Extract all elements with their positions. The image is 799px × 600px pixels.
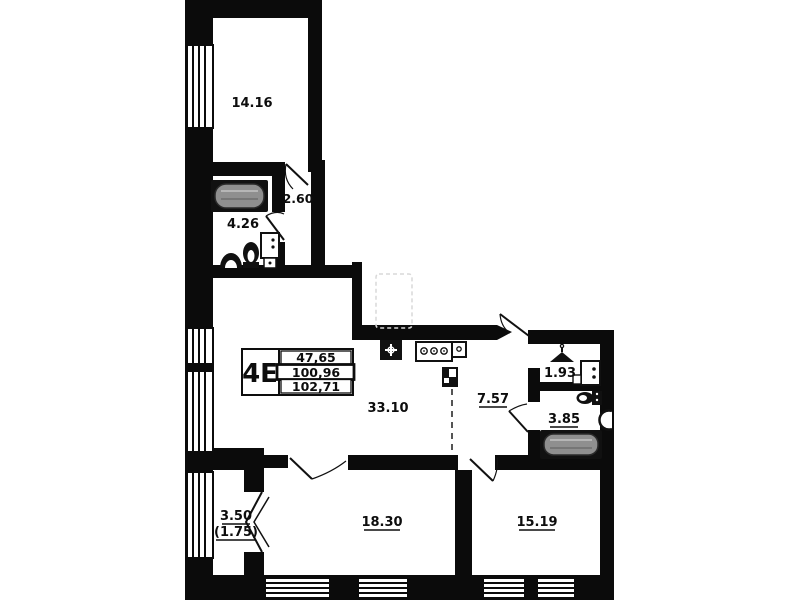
label-bedroom-bottom-left: 18.30 <box>361 515 402 530</box>
label-balcony-area: 3.50 <box>220 509 252 524</box>
wall-balcony-stub-top <box>244 468 264 492</box>
wall-kitchen-left <box>352 262 362 335</box>
label-corridor-small: 2.60 <box>283 191 314 206</box>
wall-hall-right-mid <box>528 368 540 402</box>
label-bathroom-right: 3.85 <box>548 412 580 427</box>
washing-machine-top-icon <box>261 233 279 268</box>
window-bottom-2 <box>358 578 408 598</box>
window-balcony-left <box>187 472 213 558</box>
unit-info-box: 4E 47,65 100,96 102,71 <box>242 349 354 395</box>
unit-code: 4E <box>242 359 278 389</box>
window-mid-left <box>187 328 213 452</box>
wall-bedroomtop-right <box>308 0 322 172</box>
toilet-right-icon <box>577 391 603 405</box>
window-bottom-3 <box>483 578 525 598</box>
bathtub-top-icon <box>211 180 268 212</box>
window-bottom-4 <box>537 578 575 598</box>
label-living-kitchen: 33.10 <box>367 401 408 416</box>
unit-living-area: 47,65 <box>296 350 336 365</box>
window-bottom-1 <box>265 578 330 598</box>
label-bedroom-bottom-right: 15.19 <box>516 515 557 530</box>
wall-bedrooms-divider <box>455 470 472 578</box>
unit-total-area: 102,71 <box>292 379 340 394</box>
label-bedroom-top: 14.16 <box>231 96 272 111</box>
kitchen-sink-icon <box>380 340 402 360</box>
wall-living-bottom-thick <box>348 455 458 470</box>
kitchen-appliance-icon <box>452 342 466 357</box>
window-top-left <box>187 45 213 128</box>
bathtub-right-icon <box>540 430 602 459</box>
unit-apartment-area: 100,96 <box>292 365 341 380</box>
label-balcony-reduced: (1.75) <box>214 525 258 540</box>
wall-corridor-right <box>311 160 325 265</box>
label-hallway: 7.57 <box>477 392 509 407</box>
sink-right-icon <box>599 410 612 429</box>
floor-plan: 14.16 2.60 4.26 33.10 7.57 1.93 3.85 18.… <box>0 0 799 600</box>
wall-top <box>185 0 322 18</box>
floor-plan-page: 14.16 2.60 4.26 33.10 7.57 1.93 3.85 18.… <box>0 0 799 600</box>
stove-icon <box>416 342 452 361</box>
wall-kitchen-top <box>352 325 497 340</box>
toilet-top-icon <box>243 242 259 268</box>
electrical-panel-icon <box>442 367 458 387</box>
label-bathroom-top: 4.26 <box>227 217 259 232</box>
label-wardrobe: 1.93 <box>544 366 576 381</box>
page-background <box>0 0 799 600</box>
